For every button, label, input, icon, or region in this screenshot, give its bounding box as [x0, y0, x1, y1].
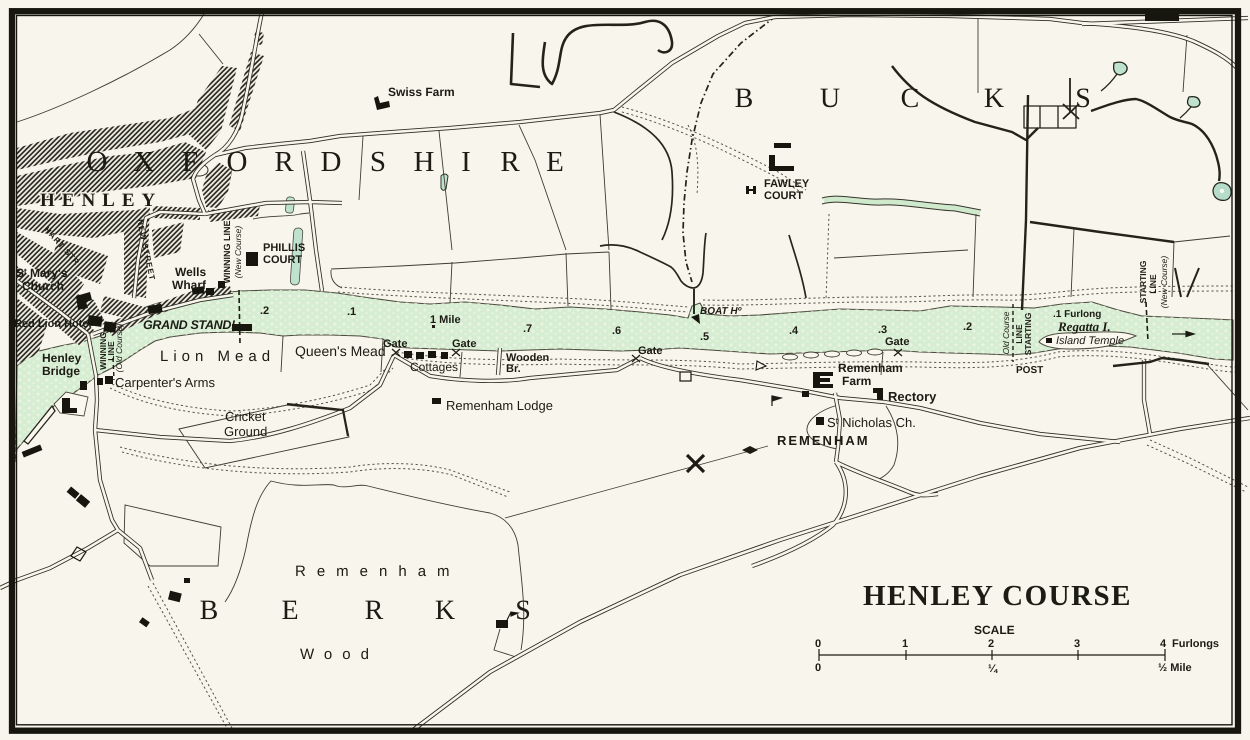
svg-text:X: X: [134, 146, 155, 178]
svg-text:.2: .2: [260, 305, 269, 317]
svg-text:Gate: Gate: [452, 338, 476, 350]
svg-text:¼: ¼: [988, 663, 998, 675]
svg-text:(New Course): (New Course): [233, 226, 243, 279]
svg-text:.4: .4: [789, 325, 799, 337]
svg-text:Gate: Gate: [885, 336, 909, 348]
svg-text:LINE: LINE: [1148, 274, 1158, 294]
svg-text:POST: POST: [1016, 365, 1043, 376]
svg-text:D: D: [321, 146, 342, 178]
svg-text:O: O: [87, 146, 108, 178]
svg-text:K: K: [984, 83, 1004, 114]
svg-text:0: 0: [815, 662, 821, 674]
svg-text:½ Mile: ½ Mile: [1158, 662, 1192, 674]
svg-text:S: S: [515, 595, 531, 626]
svg-text:REMENHAM: REMENHAM: [777, 433, 870, 448]
svg-text:3: 3: [1074, 638, 1080, 650]
svg-text:I: I: [461, 146, 471, 178]
svg-text:COURT: COURT: [263, 254, 302, 266]
svg-text:WINNING LINE: WINNING LINE: [222, 221, 232, 284]
svg-text:4: 4: [1160, 638, 1167, 650]
svg-text:K: K: [435, 595, 455, 626]
svg-text:PHILLIS: PHILLIS: [263, 242, 305, 254]
svg-text:Remenham: Remenham: [295, 563, 461, 580]
svg-text:Remenham Lodge: Remenham Lodge: [446, 398, 553, 413]
svg-text:.1: .1: [347, 306, 356, 318]
svg-text:COURT: COURT: [764, 190, 803, 202]
svg-text:2: 2: [988, 638, 994, 650]
svg-text:STARTING: STARTING: [1023, 312, 1033, 355]
svg-text:.2: .2: [963, 321, 972, 333]
svg-text:.7: .7: [523, 323, 532, 335]
svg-text:B: B: [735, 83, 754, 114]
svg-text:Carpenter's Arms: Carpenter's Arms: [115, 375, 216, 390]
svg-text:SCALE: SCALE: [974, 623, 1015, 637]
svg-text:Island Temple: Island Temple: [1056, 335, 1124, 347]
svg-text:Farm: Farm: [842, 374, 871, 388]
svg-text:Red Lion Hotel: Red Lion Hotel: [14, 318, 92, 330]
svg-text:Regatta I.: Regatta I.: [1057, 319, 1111, 334]
svg-text:Ground: Ground: [224, 424, 267, 439]
svg-text:BOAT Hº: BOAT Hº: [700, 306, 743, 317]
svg-text:Wharf: Wharf: [172, 278, 207, 292]
svg-text:Remenham: Remenham: [838, 361, 903, 375]
svg-text:Queen's Mead: Queen's Mead: [295, 343, 386, 359]
svg-text:B: B: [200, 595, 219, 626]
svg-text:R: R: [274, 146, 294, 178]
svg-text:.3: .3: [878, 324, 887, 336]
svg-text:Bridge: Bridge: [42, 364, 80, 378]
svg-text:1: 1: [902, 638, 908, 650]
svg-text:U: U: [820, 83, 840, 114]
svg-text:Gate: Gate: [383, 338, 407, 350]
svg-text:Br.: Br.: [506, 363, 521, 375]
svg-text:HENLEY: HENLEY: [40, 190, 162, 211]
svg-text:(Old Course): (Old Course): [114, 324, 124, 373]
svg-text:C: C: [901, 83, 920, 114]
svg-text:.5: .5: [700, 331, 709, 343]
svg-text:O: O: [227, 146, 248, 178]
svg-text:Henley: Henley: [42, 351, 82, 365]
svg-text:Lion Mead: Lion Mead: [160, 348, 275, 365]
svg-text:.6: .6: [612, 325, 621, 337]
svg-text:Wood: Wood: [300, 646, 379, 663]
svg-text:R: R: [500, 146, 520, 178]
svg-text:HENLEY COURSE: HENLEY COURSE: [863, 580, 1132, 612]
svg-text:E: E: [281, 595, 298, 626]
svg-text:Sᵗ Nicholas Ch.: Sᵗ Nicholas Ch.: [827, 415, 916, 430]
svg-text:STARTING: STARTING: [1138, 260, 1148, 303]
svg-text:E: E: [546, 146, 564, 178]
svg-text:LINE: LINE: [1014, 324, 1024, 344]
svg-text:FAWLEY: FAWLEY: [764, 178, 810, 190]
svg-text:Wells: Wells: [175, 265, 206, 279]
svg-text:Church: Church: [22, 279, 64, 293]
svg-text:R: R: [365, 595, 384, 626]
svg-text:(New Course): (New Course): [1159, 256, 1169, 309]
svg-text:Rectory: Rectory: [888, 389, 937, 404]
svg-text:H: H: [414, 146, 435, 178]
svg-text:F: F: [182, 146, 198, 178]
svg-text:S: S: [370, 146, 386, 178]
svg-text:Furlongs: Furlongs: [1172, 638, 1219, 650]
svg-text:GRAND STAND!: GRAND STAND!: [143, 318, 235, 332]
svg-text:1 Mile: 1 Mile: [430, 314, 461, 326]
svg-text:Cricket: Cricket: [225, 409, 266, 424]
svg-text:Cottages: Cottages: [410, 360, 458, 374]
svg-text:S: S: [1075, 83, 1091, 114]
svg-text:Swiss Farm: Swiss Farm: [388, 85, 455, 99]
svg-text:Gate: Gate: [638, 345, 662, 357]
svg-text:0: 0: [815, 638, 821, 650]
svg-text:Old Course: Old Course: [1001, 311, 1011, 354]
svg-text:Sᵗ Mary's: Sᵗ Mary's: [16, 266, 68, 280]
